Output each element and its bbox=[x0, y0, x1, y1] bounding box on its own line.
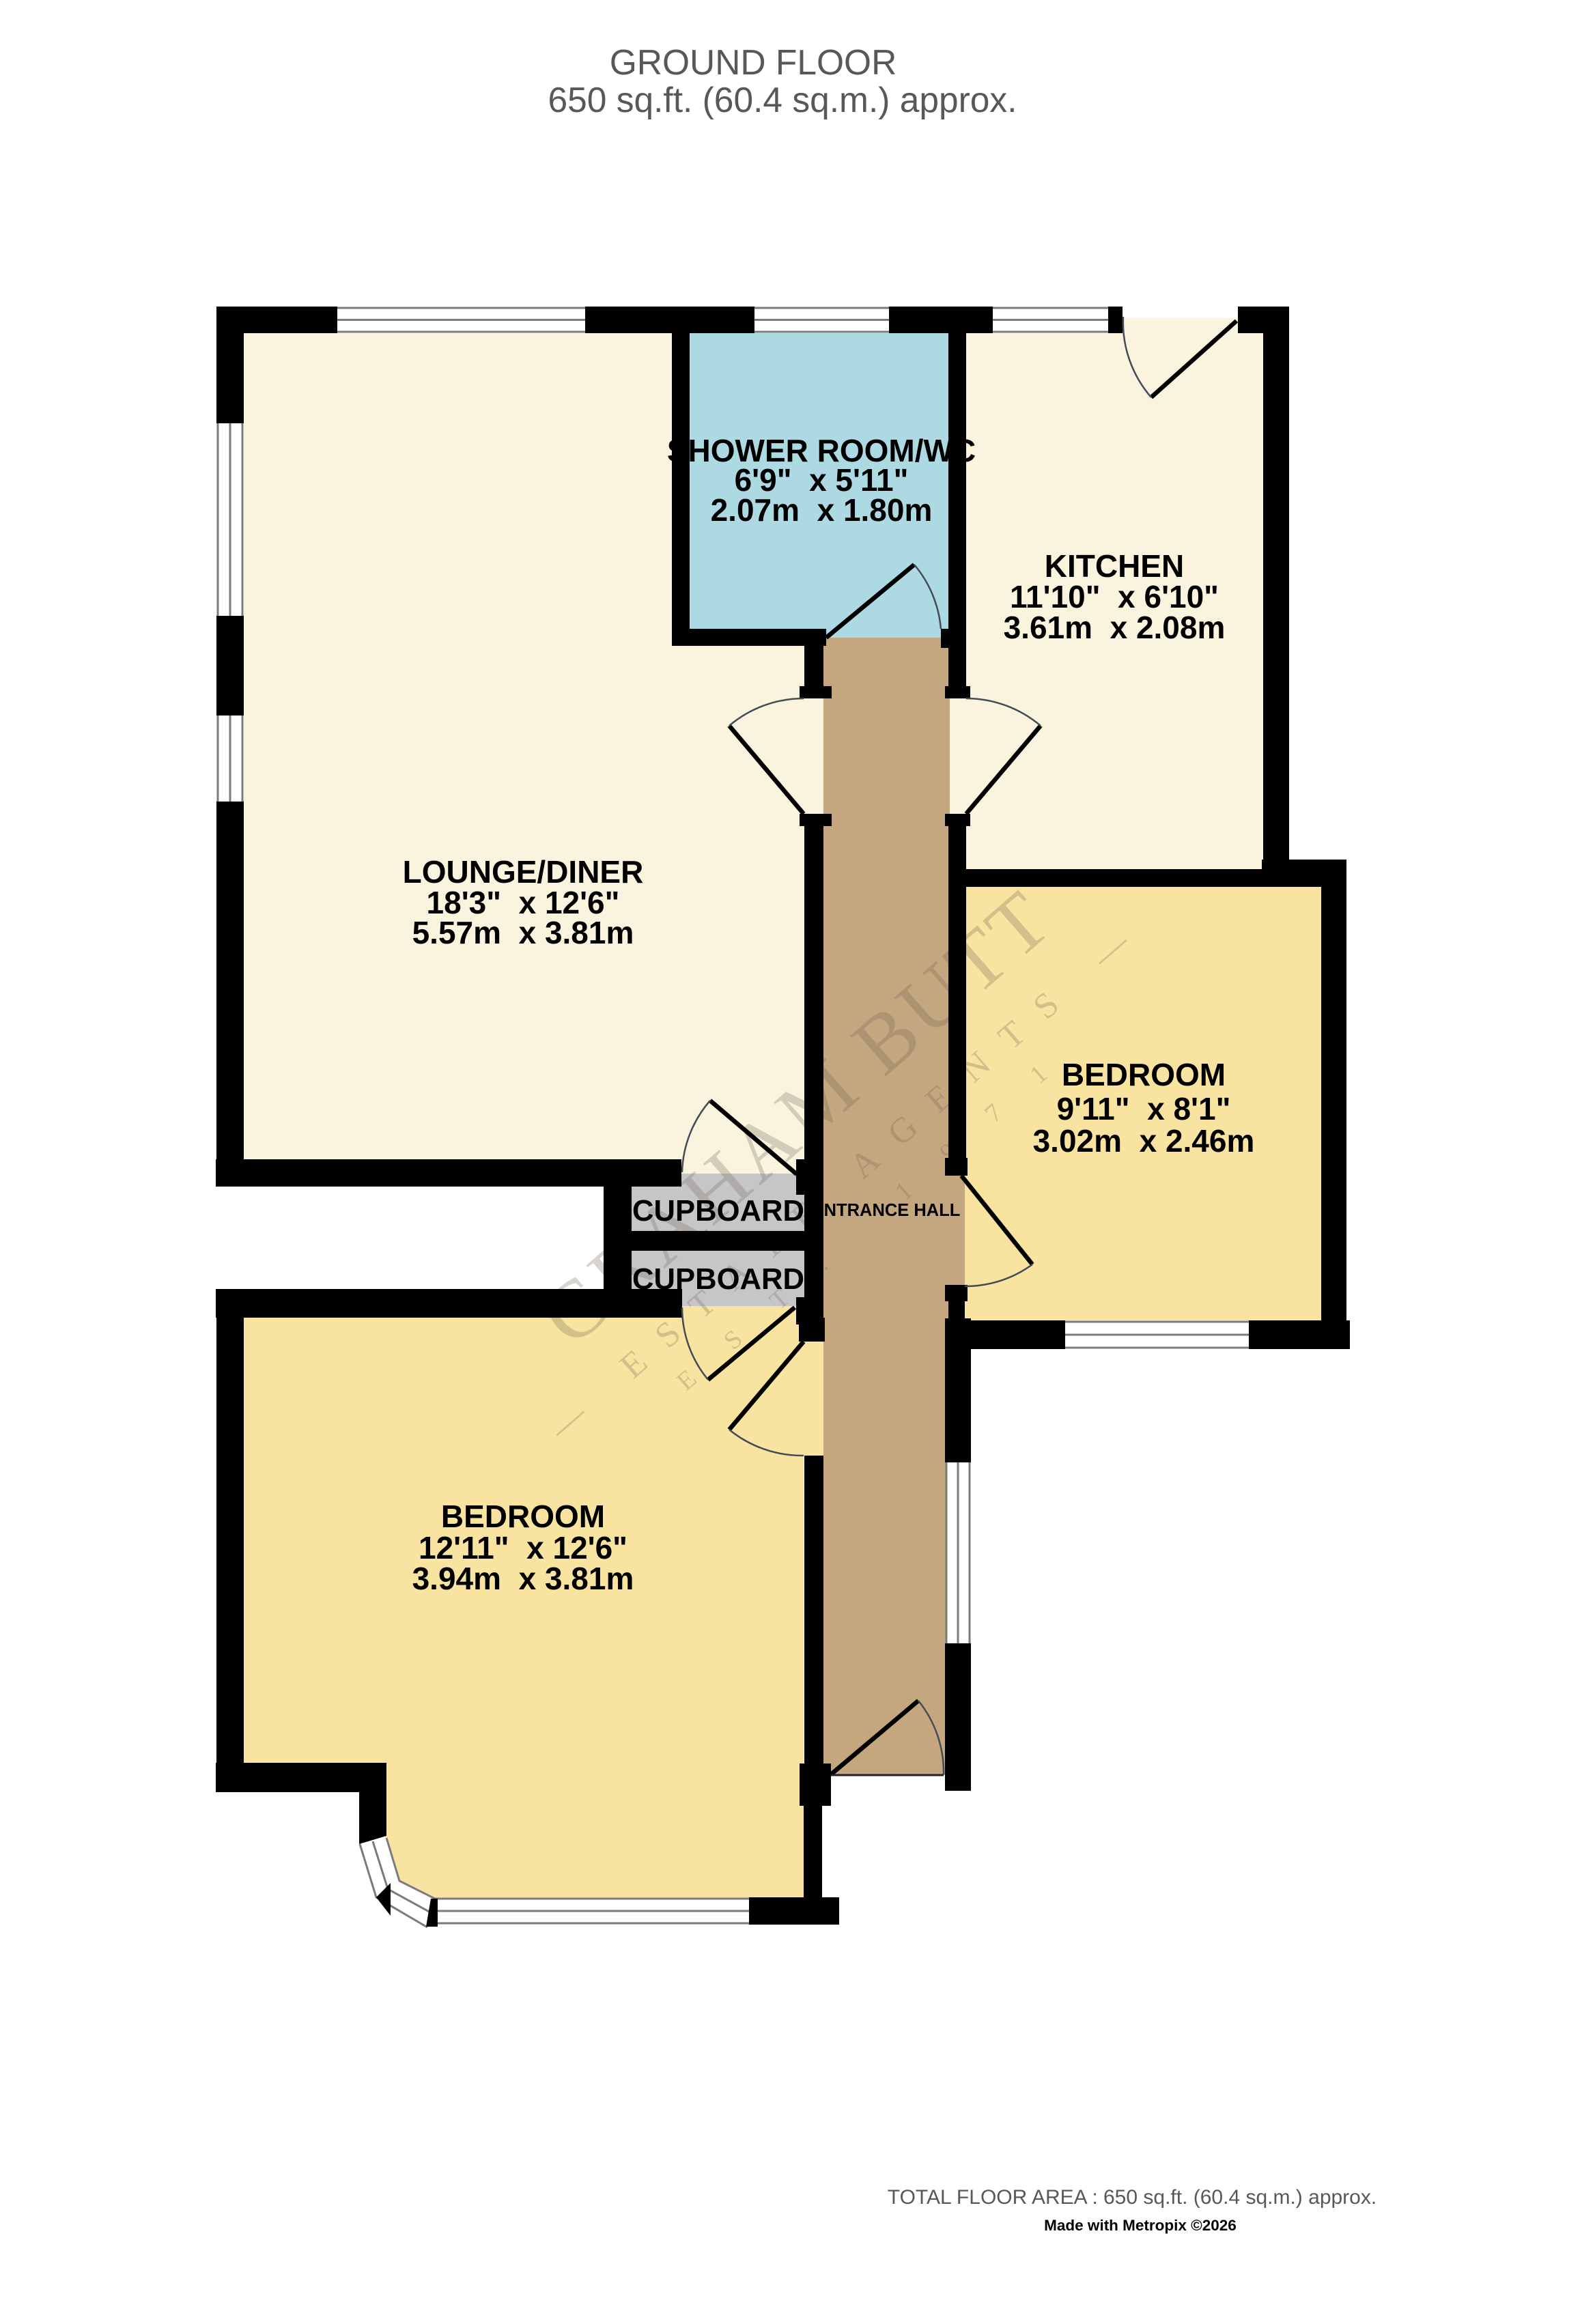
svg-text:Made with Metropix ©2026: Made with Metropix ©2026 bbox=[1044, 2217, 1237, 2234]
svg-text:9'11" x 8'1": 9'11" x 8'1" bbox=[1057, 1091, 1231, 1126]
svg-text:BEDROOM: BEDROOM bbox=[1062, 1057, 1226, 1092]
svg-text:CUPBOARD: CUPBOARD bbox=[632, 1194, 804, 1228]
svg-text:ENTRANCE HALL: ENTRANCE HALL bbox=[813, 1201, 961, 1220]
svg-text:3.94m x 3.81m: 3.94m x 3.81m bbox=[412, 1561, 634, 1596]
svg-text:3.02m x 2.46m: 3.02m x 2.46m bbox=[1033, 1123, 1255, 1159]
svg-text:650 sq.ft. (60.4 sq.m.) approx: 650 sq.ft. (60.4 sq.m.) approx. bbox=[548, 80, 1017, 119]
svg-text:BEDROOM: BEDROOM bbox=[441, 1499, 605, 1534]
svg-text:CUPBOARD: CUPBOARD bbox=[632, 1262, 804, 1296]
svg-text:TOTAL FLOOR AREA : 650 sq.ft.: TOTAL FLOOR AREA : 650 sq.ft. (60.4 sq.m… bbox=[888, 2186, 1377, 2209]
svg-text:3.61m x 2.08m: 3.61m x 2.08m bbox=[1004, 610, 1226, 645]
svg-text:5.57m x 3.81m: 5.57m x 3.81m bbox=[412, 915, 634, 950]
svg-text:2.07m x 1.80m: 2.07m x 1.80m bbox=[711, 492, 933, 528]
svg-text:GROUND FLOOR: GROUND FLOOR bbox=[610, 42, 897, 82]
